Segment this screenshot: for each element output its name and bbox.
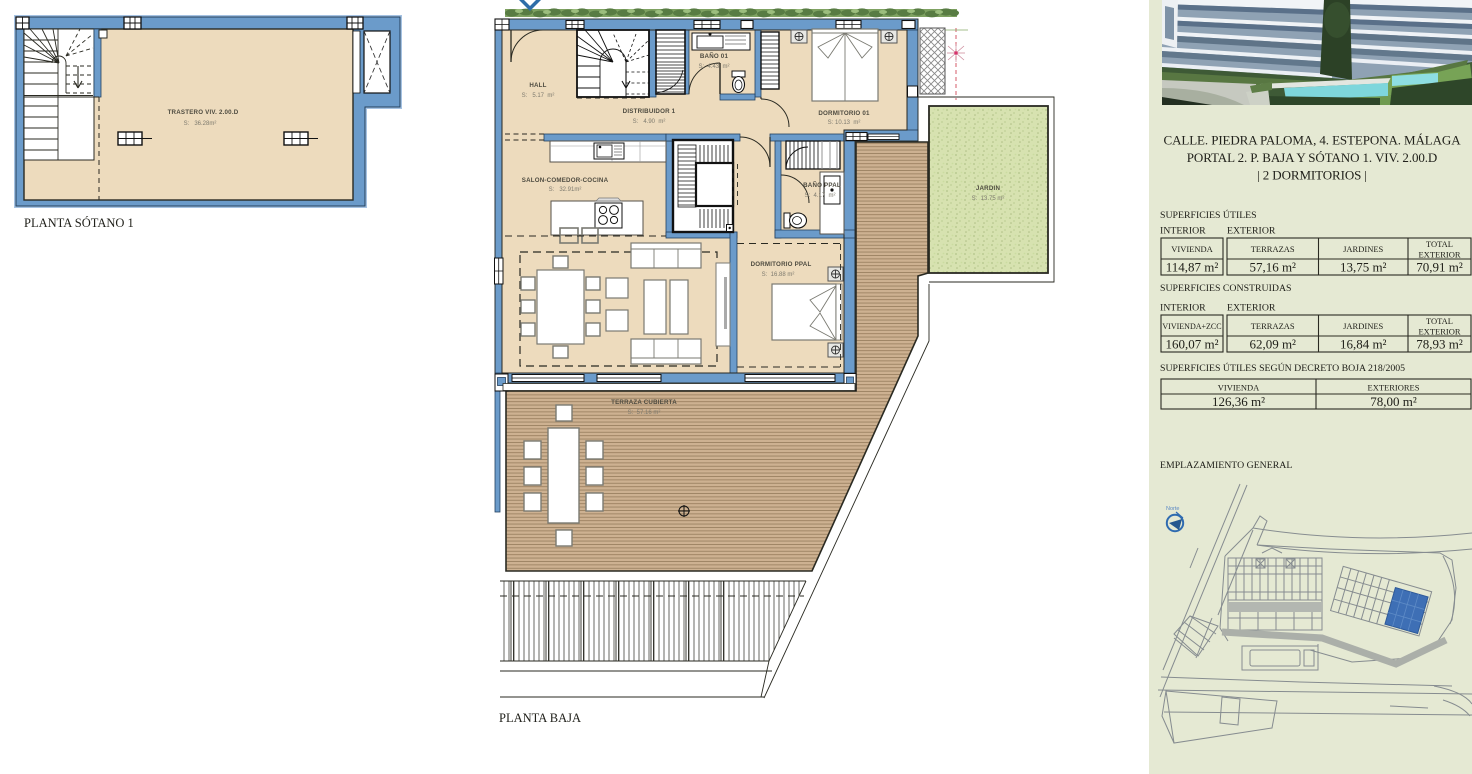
- svg-text:DISTRIBUIDOR 1: DISTRIBUIDOR 1: [623, 108, 676, 115]
- svg-text:INTERIOR: INTERIOR: [1160, 226, 1206, 237]
- svg-text:PLANTA SÓTANO 1: PLANTA SÓTANO 1: [24, 216, 134, 230]
- svg-text:Norte: Norte: [1166, 506, 1179, 512]
- svg-text:57,16 m²: 57,16 m²: [1249, 260, 1296, 275]
- svg-text:S: 4.43 m²: S: 4.43 m²: [698, 64, 729, 70]
- svg-text:HALL: HALL: [529, 82, 546, 89]
- svg-text:VIVIENDA+ZCC: VIVIENDA+ZCC: [1162, 322, 1221, 331]
- svg-text:EMPLAZAMIENTO GENERAL: EMPLAZAMIENTO GENERAL: [1160, 460, 1292, 471]
- svg-text:EXTERIOR: EXTERIOR: [1227, 303, 1276, 314]
- svg-text:EXTERIOR: EXTERIOR: [1418, 327, 1460, 337]
- svg-text:TOTAL: TOTAL: [1426, 316, 1453, 326]
- svg-text:S: 13.75 m²: S: 13.75 m²: [972, 196, 1005, 202]
- svg-text:EXTERIOR: EXTERIOR: [1418, 250, 1460, 260]
- svg-text:DORMITORIO 01: DORMITORIO 01: [818, 110, 870, 117]
- svg-text:SALON-COMEDOR-COCINA: SALON-COMEDOR-COCINA: [522, 177, 609, 184]
- svg-text:70,91 m²: 70,91 m²: [1416, 260, 1463, 275]
- svg-text:TERRAZAS: TERRAZAS: [1251, 321, 1295, 331]
- svg-text:TERRAZAS: TERRAZAS: [1251, 244, 1295, 254]
- svg-text:PLANTA BAJA: PLANTA BAJA: [499, 711, 581, 725]
- svg-text:S: 16.88 m²: S: 16.88 m²: [762, 272, 795, 278]
- svg-text:TOTAL: TOTAL: [1426, 239, 1453, 249]
- svg-text:S: 5.17 m²: S: 5.17 m²: [522, 93, 555, 99]
- svg-text:DORMITORIO PPAL: DORMITORIO PPAL: [751, 261, 812, 268]
- svg-text:INTERIOR: INTERIOR: [1160, 303, 1206, 314]
- svg-text:16,84 m²: 16,84 m²: [1340, 337, 1387, 352]
- svg-text:S: 4.17 m²: S: 4.17 m²: [804, 193, 835, 199]
- svg-text:13,75 m²: 13,75 m²: [1340, 260, 1387, 275]
- svg-text:160,07 m²: 160,07 m²: [1165, 337, 1218, 352]
- svg-text:S: 32.91m²: S: 32.91m²: [549, 187, 582, 193]
- svg-text:114,87 m²: 114,87 m²: [1166, 260, 1219, 275]
- svg-text:| 2 DORMITORIOS |: | 2 DORMITORIOS |: [1257, 168, 1367, 183]
- svg-text:JARDIN: JARDIN: [976, 185, 1001, 192]
- svg-text:VIVIENDA: VIVIENDA: [1218, 383, 1260, 393]
- svg-text:S: 57.16 m²: S: 57.16 m²: [628, 410, 661, 416]
- svg-text:VIVIENDA: VIVIENDA: [1171, 244, 1213, 254]
- svg-text:SUPERFICIES ÚTILES SEGÚN DECRE: SUPERFICIES ÚTILES SEGÚN DECRETO BOJA 21…: [1160, 362, 1405, 374]
- svg-text:TERRAZA CUBIERTA: TERRAZA CUBIERTA: [611, 399, 677, 406]
- svg-text:78,93 m²: 78,93 m²: [1416, 337, 1463, 352]
- svg-text:126,36 m²: 126,36 m²: [1212, 394, 1265, 409]
- svg-text:CALLE. PIEDRA PALOMA, 4. ESTEP: CALLE. PIEDRA PALOMA, 4. ESTEPONA. MÁLAG…: [1164, 133, 1462, 148]
- svg-text:BAÑO 01: BAÑO 01: [700, 53, 729, 60]
- svg-text:78,00 m²: 78,00 m²: [1370, 394, 1417, 409]
- svg-text:S: 10.13 m²: S: 10.13 m²: [828, 120, 861, 126]
- svg-text:TRASTERO VIV. 2.00.D: TRASTERO VIV. 2.00.D: [168, 109, 239, 116]
- svg-text:JARDINES: JARDINES: [1343, 244, 1383, 254]
- svg-text:S: 36.28m²: S: 36.28m²: [184, 121, 217, 127]
- svg-text:S: 4.90 m²: S: 4.90 m²: [633, 119, 666, 125]
- svg-text:SUPERFICIES CONSTRUIDAS: SUPERFICIES CONSTRUIDAS: [1160, 283, 1291, 294]
- svg-text:PORTAL 2. P. BAJA Y SÓTANO 1.: PORTAL 2. P. BAJA Y SÓTANO 1. VIV. 2.00.…: [1187, 150, 1437, 165]
- svg-text:EXTERIORES: EXTERIORES: [1368, 383, 1420, 393]
- svg-text:62,09 m²: 62,09 m²: [1249, 337, 1296, 352]
- svg-text:BAÑO PPAL: BAÑO PPAL: [803, 182, 841, 189]
- svg-text:SUPERFICIES ÚTILES: SUPERFICIES ÚTILES: [1160, 209, 1257, 221]
- svg-text:JARDINES: JARDINES: [1343, 321, 1383, 331]
- svg-text:EXTERIOR: EXTERIOR: [1227, 226, 1276, 237]
